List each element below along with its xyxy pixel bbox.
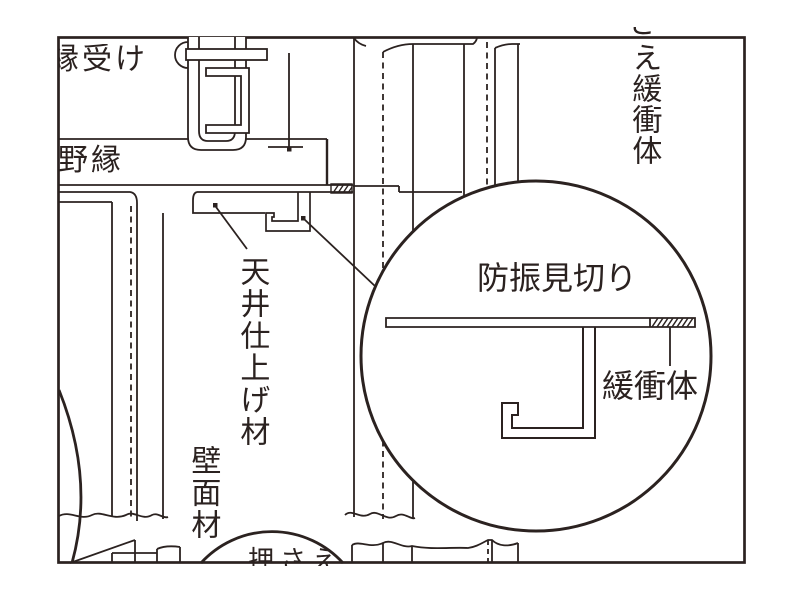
top-right-fragment: さ [628,27,656,40]
top-leader [268,53,303,152]
left-detail-arc [59,390,81,563]
ceiling-finish-leader [213,203,247,249]
top-right-buffer-label: え緩衝体 [627,42,659,166]
break-line [59,514,168,518]
bottom-label-clip: 押さえ [248,546,336,566]
left-wall-panel [59,192,168,521]
ceiling-finish-label: 天井仕上げ材 [235,256,267,448]
detail-title: 防振見切り [477,261,637,296]
drawing-canvas: 縁受け 野縁 天井仕上げ材 壁面材 さ え緩衝体 防振見切り 緩衝体 押さえ [0,0,800,600]
top-right-fragment-clip: さ [628,27,656,40]
break-line [345,513,415,519]
wall-panel-label: 壁面材 [186,445,218,541]
hanger-label: 縁受け [58,44,150,76]
trim-detail-leader [301,216,376,287]
hanger-assembly [175,37,267,150]
trim-profile-small [266,192,310,231]
skirting [70,540,180,563]
joist-label: 野縁 [58,145,124,177]
bottom-label: 押さえ [248,546,336,566]
hanger-label-clip: 縁受け [58,44,150,80]
detail-buffer-label: 緩衝体 [602,369,698,404]
detail-circle [361,181,711,531]
technical-drawing [0,0,800,600]
base-strip [352,540,518,563]
hanger-plate [186,49,267,60]
